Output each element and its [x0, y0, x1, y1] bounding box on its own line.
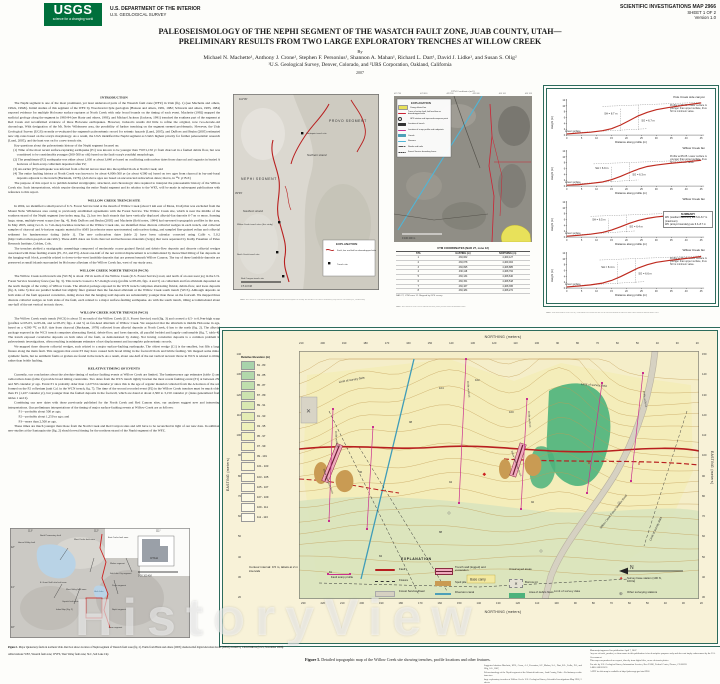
svg-text:35: 35	[670, 188, 673, 191]
elevation-swatch-row: 87 - 89	[241, 391, 281, 401]
fig2-caption-label: Figure 2.	[240, 299, 245, 301]
elevation-swatch-row: 97 - 99	[241, 442, 281, 452]
svg-text:45: 45	[700, 137, 703, 140]
fig3-scale-bar: 0 100 200 m	[402, 237, 415, 240]
text-block: WILLOW CREEK NORTH TRENCH (WCN)	[8, 268, 220, 273]
legend-spoil	[435, 581, 451, 586]
svg-text:40: 40	[685, 188, 688, 191]
svg-text:84: 84	[379, 554, 383, 558]
svg-text:45: 45	[700, 239, 703, 242]
axis-tick: 150	[702, 353, 712, 356]
axis-tick: 110	[513, 342, 517, 345]
text-block: (2) The penultimate (P2) earthquake was …	[8, 157, 220, 166]
svg-text:West Cache fault zone: West Cache fault zone	[74, 538, 96, 541]
text-block: We mapped three discrete colluvial wedge…	[8, 344, 220, 363]
legend-road	[375, 591, 395, 597]
summary-line2: WC (arroyo boundary) are 6.3–8.7 m	[665, 223, 711, 226]
svg-text:SO = 6.6 m: SO = 6.6 m	[638, 272, 652, 276]
figure4-caption: Figure 4. Scarp profiles from the Willow…	[546, 307, 714, 325]
fig5-left-ticks: 1401301201101009080706050403020	[231, 353, 241, 599]
axis-tick: 140	[477, 602, 481, 605]
svg-text:Oquirrh fault zone: Oquirrh fault zone	[62, 600, 79, 603]
legend-debris	[509, 593, 525, 598]
fig4-caption-text: Scarp profiles from the Willow Creek sit…	[552, 312, 659, 314]
legend-symbol	[398, 134, 406, 137]
text-block: These times are much younger than those …	[8, 424, 220, 433]
suggested-citation: Suggested citation: Machette, M.N., Cron…	[484, 665, 586, 684]
svg-text:30: 30	[655, 137, 658, 140]
axis-tick: 100	[535, 342, 539, 345]
profile-chart-1: Willow Creek fan Profile wc05-05. Lower …	[551, 144, 711, 195]
svg-text:8: 8	[564, 264, 566, 267]
figure1-caption: Figure 1. Major Quaternary faults in nor…	[8, 643, 298, 679]
axis-tick: 110	[535, 602, 539, 605]
legend-borrow-pit: ✕	[509, 579, 523, 588]
fig5-bottom-axis-label: NORTHING (meters)	[423, 610, 583, 614]
trench-wall-icon	[435, 568, 453, 575]
publication-id: SCIENTIFIC INVESTIGATIONS MAP 2966 SHEET…	[520, 4, 716, 20]
color-swatch	[241, 513, 255, 522]
svg-text:0: 0	[566, 188, 568, 191]
axis-tick: 130	[496, 602, 500, 605]
color-swatch	[241, 473, 255, 482]
elevation-swatch-row: 89 - 91	[241, 401, 281, 411]
fig2-explanation-box: EXPLANATION Fault, bar and ball on downd…	[323, 240, 377, 276]
svg-text:West Valley fault zone: West Valley fault zone	[66, 588, 87, 591]
svg-text:12: 12	[562, 201, 565, 204]
axis-tick: 50	[646, 602, 649, 605]
svg-text:8: 8	[564, 162, 566, 165]
svg-text:35: 35	[670, 137, 673, 140]
svg-text:40°: 40°	[11, 626, 15, 629]
axis-tick: 40	[664, 602, 667, 605]
svg-text:10: 10	[562, 258, 565, 261]
svg-text:SH = 8.4 m: SH = 8.4 m	[601, 265, 615, 269]
svg-text:SH = 6.5 m: SH = 6.5 m	[592, 218, 606, 222]
svg-text:5: 5	[581, 290, 583, 293]
svg-text:SO = 6.7 m: SO = 6.7 m	[641, 118, 655, 122]
color-swatch	[241, 462, 255, 471]
department-lines: U.S. DEPARTMENT OF THE INTERIOR U.S. GEO…	[110, 6, 200, 17]
fault-line-icon	[375, 569, 395, 571]
axis-tick: 110	[702, 434, 712, 437]
svg-text:20: 20	[625, 290, 628, 293]
legend-label: Location of scarp profile and endpoints	[408, 129, 444, 131]
axis-tick: 70	[702, 515, 712, 518]
axis-tick: 130	[471, 342, 475, 345]
fig5-map-svg: ✕	[299, 351, 699, 599]
legend-symbol	[398, 105, 408, 110]
svg-text:10: 10	[562, 105, 565, 108]
svg-text:Weber segment: Weber segment	[110, 562, 125, 565]
color-swatch	[241, 452, 255, 461]
axis-tick: 200	[360, 602, 364, 605]
publication-year: 2007	[70, 70, 650, 75]
text-block: (4) The entire faulting history at North…	[8, 171, 220, 180]
usgs-logo: USGS science for a changing world	[44, 3, 102, 26]
axis-tick: 120	[492, 342, 496, 345]
elevation-swatches: 81 - 83 83 - 85 85 - 87 87 - 89	[241, 360, 281, 523]
text-block: The purpose of this report is to publish…	[8, 181, 220, 195]
svg-text:Levan segment: Levan segment	[108, 626, 123, 629]
svg-text:20: 20	[625, 188, 628, 191]
svg-text:Index Map (Fig. 2): Index Map (Fig. 2)	[56, 609, 73, 611]
svg-text:40: 40	[685, 290, 688, 293]
elevation-swatch-row: 105 - 107	[241, 482, 281, 492]
fig3-utm-table: UTM COORDINATES (NAD 27, zone 12) STA EA…	[396, 246, 530, 297]
elevation-swatch-row: 83 - 85	[241, 370, 281, 380]
svg-text:15: 15	[610, 290, 613, 293]
figure1-utah-map: UTAH 0 50 100 KM North Promontory fault …	[10, 528, 190, 638]
utm-tick: 429 800	[420, 93, 427, 95]
fig3-utm-ticks: 429 700429 800429 900430 000430 100430 2…	[394, 93, 532, 95]
svg-text:10: 10	[595, 188, 598, 191]
legend-canal	[435, 593, 451, 595]
north-arrow-icon: N	[617, 564, 687, 576]
svg-text:30: 30	[655, 188, 658, 191]
fig2-coord-left: 39°45'	[235, 191, 243, 195]
limit-label-4: Limit of survey data	[554, 589, 580, 593]
axis-tick: 150	[457, 602, 461, 605]
svg-text:Hansel Valley fault: Hansel Valley fault	[18, 541, 35, 544]
fig4-summary-box: SUMMARY WC (southern alluvium) are 5.8–8…	[663, 211, 713, 228]
affiliations: ¹U.S. Geological Survey, Denver, Colorad…	[70, 62, 650, 68]
legend-label: Location of trench	[408, 123, 425, 125]
svg-text:Nephi segment: Nephi segment	[112, 608, 126, 611]
axis-tick: 30	[682, 602, 685, 605]
fig3-caption-label: Figure 3.	[396, 306, 401, 308]
byline: By	[70, 49, 650, 54]
legend-symbol	[398, 152, 406, 153]
citation-line: large exploratory trenches at Willow Cre…	[484, 679, 586, 684]
axis-tick: 180	[363, 342, 367, 345]
svg-text:35: 35	[670, 239, 673, 242]
department-line2: U.S. GEOLOGICAL SURVEY	[110, 12, 200, 17]
note-line: A PDF for this map is available at http:…	[590, 671, 716, 674]
axis-tick: 210	[340, 602, 344, 605]
svg-text:15: 15	[610, 239, 613, 242]
elevation-swatch-row: 109 - 111	[241, 503, 281, 513]
fig5-caption-label: Figure 5.	[305, 657, 320, 662]
svg-text:94: 94	[449, 480, 453, 484]
utm-table-note: NAD 27, UTM zone 12. Mapped by GPS surve…	[396, 295, 530, 297]
pub-version: Version 1.0	[520, 15, 716, 20]
axis-tick: 150	[428, 342, 432, 345]
text-block: Combining our new dates with those previ…	[8, 400, 220, 409]
fig3-legend-row: Forest Service boundary fence	[398, 150, 450, 156]
svg-text:10: 10	[562, 207, 565, 210]
svg-text:25: 25	[640, 290, 643, 293]
legend-fault	[375, 569, 395, 571]
legend-fissure	[375, 581, 395, 582]
axis-tick: 50	[238, 535, 241, 538]
citation-line: Paleoseismology of the Nephi segment of …	[484, 672, 586, 679]
svg-text:8: 8	[564, 111, 566, 114]
axis-tick: 70	[596, 342, 599, 345]
svg-text:2: 2	[564, 230, 566, 233]
fault-scarp-profile-icon	[327, 573, 351, 576]
base-station-icon: ✦	[619, 577, 623, 582]
svg-text:5: 5	[581, 188, 583, 191]
spoil-pile-icon	[435, 581, 451, 586]
svg-text:0: 0	[566, 290, 568, 293]
axis-tick: 80	[702, 495, 712, 498]
utm-table-rows: 1 430,062 4,409,127 2 430,078 4,409,004 …	[396, 256, 530, 294]
legend-label: Young alluvial fan	[410, 107, 426, 109]
road-band-icon	[375, 591, 395, 597]
utm-col-easting: EASTING (m)	[441, 252, 486, 256]
legend-symbol	[398, 146, 406, 147]
axis-tick: 60	[702, 535, 712, 538]
contour-interval-note: Contour interval: 0.5 m, labels at 2 m i…	[249, 565, 309, 573]
svg-text:N: N	[630, 565, 634, 571]
color-swatch	[241, 371, 255, 380]
citation-line: Suggested citation: Machette, M.N., Cron…	[484, 665, 586, 672]
elevation-swatch-row: 101 - 103	[241, 462, 281, 472]
legend-label: GPS station and tape-and-compass point	[410, 118, 448, 120]
axis-tick: 60	[628, 602, 631, 605]
color-swatch	[241, 412, 255, 421]
color-swatch	[241, 503, 255, 512]
legend-symbol	[398, 117, 402, 121]
color-swatch	[241, 422, 255, 431]
figure3-caption: Figure 3. Index map for the Willow Creek…	[396, 301, 530, 319]
text-block: The Willow Creek south trench (WCS) is a…	[8, 316, 220, 344]
axis-tick: 90	[556, 342, 559, 345]
fig1-caption-text: Major Quaternary faults in northern Utah…	[8, 646, 284, 656]
elevation-legend-title: Relative Elevation (m)	[241, 355, 281, 359]
svg-text:4: 4	[564, 275, 566, 278]
axis-tick: 30	[702, 596, 712, 599]
axis-tick: 60	[616, 342, 619, 345]
svg-text:12: 12	[562, 99, 565, 102]
base-camp-label: Base camp	[470, 578, 486, 582]
axis-tick: 180	[399, 602, 403, 605]
svg-text:100: 100	[509, 410, 514, 414]
utm-table-row: 8 430,184 4,408,272	[396, 289, 530, 294]
axis-tick: 100	[554, 602, 558, 605]
legend-label: Roads and trails	[408, 146, 423, 148]
axis-tick: 160	[406, 342, 410, 345]
legend-label: Canals	[408, 135, 414, 137]
color-swatch	[241, 493, 255, 502]
axis-tick: 140	[702, 373, 712, 376]
axis-tick: 230	[301, 602, 305, 605]
svg-text:4: 4	[564, 122, 566, 125]
legend-symbol	[398, 141, 406, 142]
svg-text:6: 6	[564, 219, 566, 222]
svg-text:20: 20	[625, 239, 628, 242]
svg-text:10: 10	[562, 156, 565, 159]
authors: Michael N. Machette¹, Anthony J. Crone¹,…	[70, 55, 650, 61]
borrow-pit-x-icon: ✕	[306, 409, 311, 415]
utm-col-sta: STA	[396, 252, 441, 256]
fig2-label-northern-strand: Northern strand	[307, 153, 327, 157]
text-block: WILLOW CREEK TRENCH SITE	[8, 198, 220, 203]
fig2-explanation-trench: Trench site	[337, 263, 349, 266]
axis-tick: 70	[610, 602, 613, 605]
fig5-caption-text: Detailed topographic map of the Willow C…	[321, 657, 490, 662]
axis-tick: 20	[696, 342, 699, 345]
axis-tick: 190	[379, 602, 383, 605]
figure5-topo-map: NORTHING (meters) 2102001901801701601501…	[222, 330, 718, 644]
elevation-swatch-row: 91 - 93	[241, 411, 281, 421]
figure3-aerial-map: EXPLANATION 0 100 200 m Young alluvial f…	[394, 96, 532, 242]
color-swatch	[241, 442, 255, 451]
fig2-scale-bar: 0 5 10 KM	[241, 285, 252, 288]
text-block: The trenches yielded a stratigraphic ass…	[8, 246, 220, 265]
fig5-elevation-legend: Relative Elevation (m) 81 - 83 83 - 85	[241, 355, 281, 523]
text-block: WILLOW CREEK SOUTH TRENCH (WCS)	[8, 310, 220, 315]
svg-text:20: 20	[625, 137, 628, 140]
fig5-bottom-ticks: 2302202102001901801701601501401301201101…	[301, 602, 703, 605]
borrow-pit-icon: ✕	[509, 579, 523, 588]
fig5-left-axis-label: EASTING (meters)	[226, 458, 230, 491]
axis-tick: 50	[636, 342, 639, 345]
fig5-explanation-title: EXPLANATION	[401, 557, 432, 561]
svg-text:111°: 111°	[156, 529, 161, 532]
fig2-site-red-canyon: Red Canyon trench site	[241, 277, 265, 280]
color-swatch	[241, 483, 255, 492]
svg-text:5: 5	[581, 239, 583, 242]
text-block: Currently, our conclusions about the abs…	[8, 372, 220, 400]
fig2-site-willow-creek: Willow Creek trench sites (this study)	[237, 223, 273, 226]
legend-label: Forest Service boundary fence	[408, 151, 436, 153]
axis-tick: 120	[516, 602, 520, 605]
svg-text:41°: 41°	[11, 586, 15, 589]
svg-text:6: 6	[564, 270, 566, 273]
svg-text:15: 15	[610, 188, 613, 191]
axis-tick: 200	[320, 342, 324, 345]
other-station-icon: ⊕	[619, 591, 623, 596]
fig2-label-nephi-segment: NEPHI SEGMENT	[241, 177, 277, 181]
utm-tick: 430 100	[499, 93, 506, 95]
color-swatch	[241, 361, 255, 370]
svg-text:0: 0	[566, 137, 568, 140]
svg-text:4: 4	[564, 224, 566, 227]
svg-text:North Promontory fault: North Promontory fault	[40, 534, 61, 537]
elevation-swatch-row: 103 - 105	[241, 472, 281, 482]
axis-tick: 120	[702, 414, 712, 417]
axis-tick: 30	[676, 342, 679, 345]
profile-chart-3: Willow Creek fan Profile wc05-02. Lower …	[551, 246, 711, 297]
text-block: In 2004, we identified a small parcel of…	[8, 204, 220, 246]
elevation-swatch-row: 93 - 95	[241, 421, 281, 431]
elevation-swatch-row: 99 - 101	[241, 452, 281, 462]
text-block: The Willow Creek north trench site (WCN)…	[8, 274, 220, 307]
utm-tick: 430 000	[473, 93, 480, 95]
figure2-caption: Figure 2. Index map for the Nephi segmen…	[240, 294, 380, 312]
figure4-scarp-profiles: Pole Creek side canyon Profile wc05-06. …	[546, 88, 716, 304]
svg-text:6: 6	[564, 168, 566, 171]
axis-tick: 40	[656, 342, 659, 345]
elevation-swatch-row: 81 - 83	[241, 360, 281, 370]
article-blocks: INTRODUCTIONThe Nephi segment is one of …	[8, 95, 220, 433]
svg-text:Utah Lake: Utah Lake	[94, 590, 104, 593]
svg-text:8: 8	[564, 213, 566, 216]
fig2-site-santaquin: Santaquin trench site	[306, 132, 327, 135]
fig1-caption-label: Figure 1.	[8, 646, 18, 649]
axis-tick: 160	[438, 602, 442, 605]
svg-text:SH = 6.9 m: SH = 6.9 m	[595, 166, 609, 170]
utm-tick: 429 900	[446, 93, 453, 95]
svg-text:45: 45	[700, 290, 703, 293]
fig2-caption-text: Index map for the Nephi segment showing …	[246, 299, 365, 301]
title-block: PALEOSEISMOLOGY OF THE NEPHI SEGMENT OF …	[70, 27, 650, 75]
svg-text:10: 10	[595, 239, 598, 242]
legend-symbol	[398, 113, 406, 114]
legend-symbol	[398, 123, 406, 126]
svg-text:30: 30	[655, 239, 658, 242]
elevation-swatch-row: 95 - 97	[241, 431, 281, 441]
axis-tick: 220	[321, 602, 325, 605]
fig2-explanation-fault: Fault, bar and ball on downdropped side	[337, 249, 377, 252]
svg-text:12: 12	[562, 252, 565, 255]
svg-text:104: 104	[439, 386, 444, 390]
publication-notes: Manuscript approved for publication Apri…	[590, 650, 716, 674]
fig2-label-provo-segment: PROVO SEGMENT	[329, 119, 367, 123]
text-block: (1) Time of the most recent surface-rupt…	[8, 148, 220, 157]
page-title-line1: PALEOSEISMOLOGY OF THE NEPHI SEGMENT OF …	[70, 27, 650, 37]
svg-text:4: 4	[564, 173, 566, 176]
axis-tick: 80	[592, 602, 595, 605]
fig2-site-north-creek: North Creek trench site	[237, 253, 260, 256]
elevation-swatch-row: 111 - 113	[241, 513, 281, 523]
axis-tick: 140	[449, 342, 453, 345]
fig5-right-axis-label: EASTING (meters)	[710, 451, 714, 484]
svg-text:42°: 42°	[11, 546, 15, 549]
utah-inset: UTAH	[138, 536, 174, 566]
axis-tick: 80	[576, 342, 579, 345]
svg-text:25: 25	[640, 137, 643, 140]
svg-text:East Cache fault zone: East Cache fault zone	[108, 536, 129, 539]
fig2-label-southern-strand: Southern strand	[243, 209, 263, 213]
svg-text:102: 102	[475, 378, 480, 382]
svg-text:SH = 8.7 m: SH = 8.7 m	[604, 112, 618, 116]
svg-text:25: 25	[640, 239, 643, 242]
profile-chart-0: Pole Creek side canyon Profile wc05-06. …	[551, 93, 711, 144]
fig4-caption-label: Figure 4.	[546, 312, 551, 314]
legend-symbol	[398, 130, 406, 131]
utah-inset-label: UTAH	[150, 556, 158, 560]
svg-text:35: 35	[670, 290, 673, 293]
fig3-legend: Young alluvial fan Trace of active fault…	[398, 105, 450, 155]
svg-text:40: 40	[685, 239, 688, 242]
elevation-swatch-row: 107 - 109	[241, 492, 281, 502]
axis-tick: 30	[238, 576, 241, 579]
figure2-svg: 111°45' 39°45' PROVO SEGMENT NEPHI SEGME…	[233, 94, 379, 290]
legend-label: Streams	[408, 140, 416, 142]
svg-text:Salt Lake City segment: Salt Lake City segment	[110, 572, 132, 575]
svg-text:SO = 6.4 m: SO = 6.4 m	[629, 224, 643, 228]
figure2-index-map: 111°45' 39°45' PROVO SEGMENT NEPHI SEGME…	[233, 94, 379, 290]
svg-text:30: 30	[655, 290, 658, 293]
utm-tick: 429 700	[394, 93, 401, 95]
svg-text:40: 40	[685, 137, 688, 140]
canal-line-icon	[435, 593, 451, 595]
svg-text:E. Great Salt Lake fault zone: E. Great Salt Lake fault zone	[40, 581, 67, 584]
fig2-coord-top: 111°45'	[239, 97, 248, 101]
svg-text:45: 45	[700, 188, 703, 191]
svg-text:112°: 112°	[94, 529, 99, 532]
svg-text:Provo segment: Provo segment	[112, 584, 126, 587]
elevation-swatch-row: 85 - 87	[241, 380, 281, 390]
axis-tick: 50	[702, 556, 712, 559]
fig5-top-axis-label: NORTHING (meters)	[423, 335, 583, 339]
svg-text:2: 2	[564, 128, 566, 131]
legend-fault-scarp-profile: Fault scarp profile	[327, 573, 357, 579]
color-swatch	[241, 381, 255, 390]
